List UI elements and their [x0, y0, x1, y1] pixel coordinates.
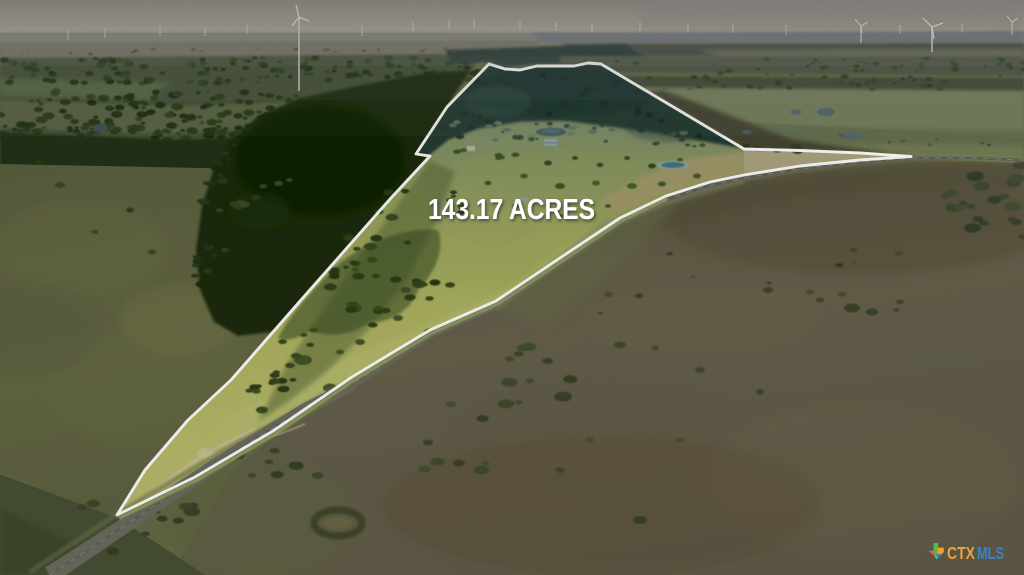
- svg-text:143.17 ACRES: 143.17 ACRES: [428, 194, 595, 226]
- svg-text:MLS: MLS: [977, 543, 1004, 563]
- svg-text:CTX: CTX: [947, 543, 975, 563]
